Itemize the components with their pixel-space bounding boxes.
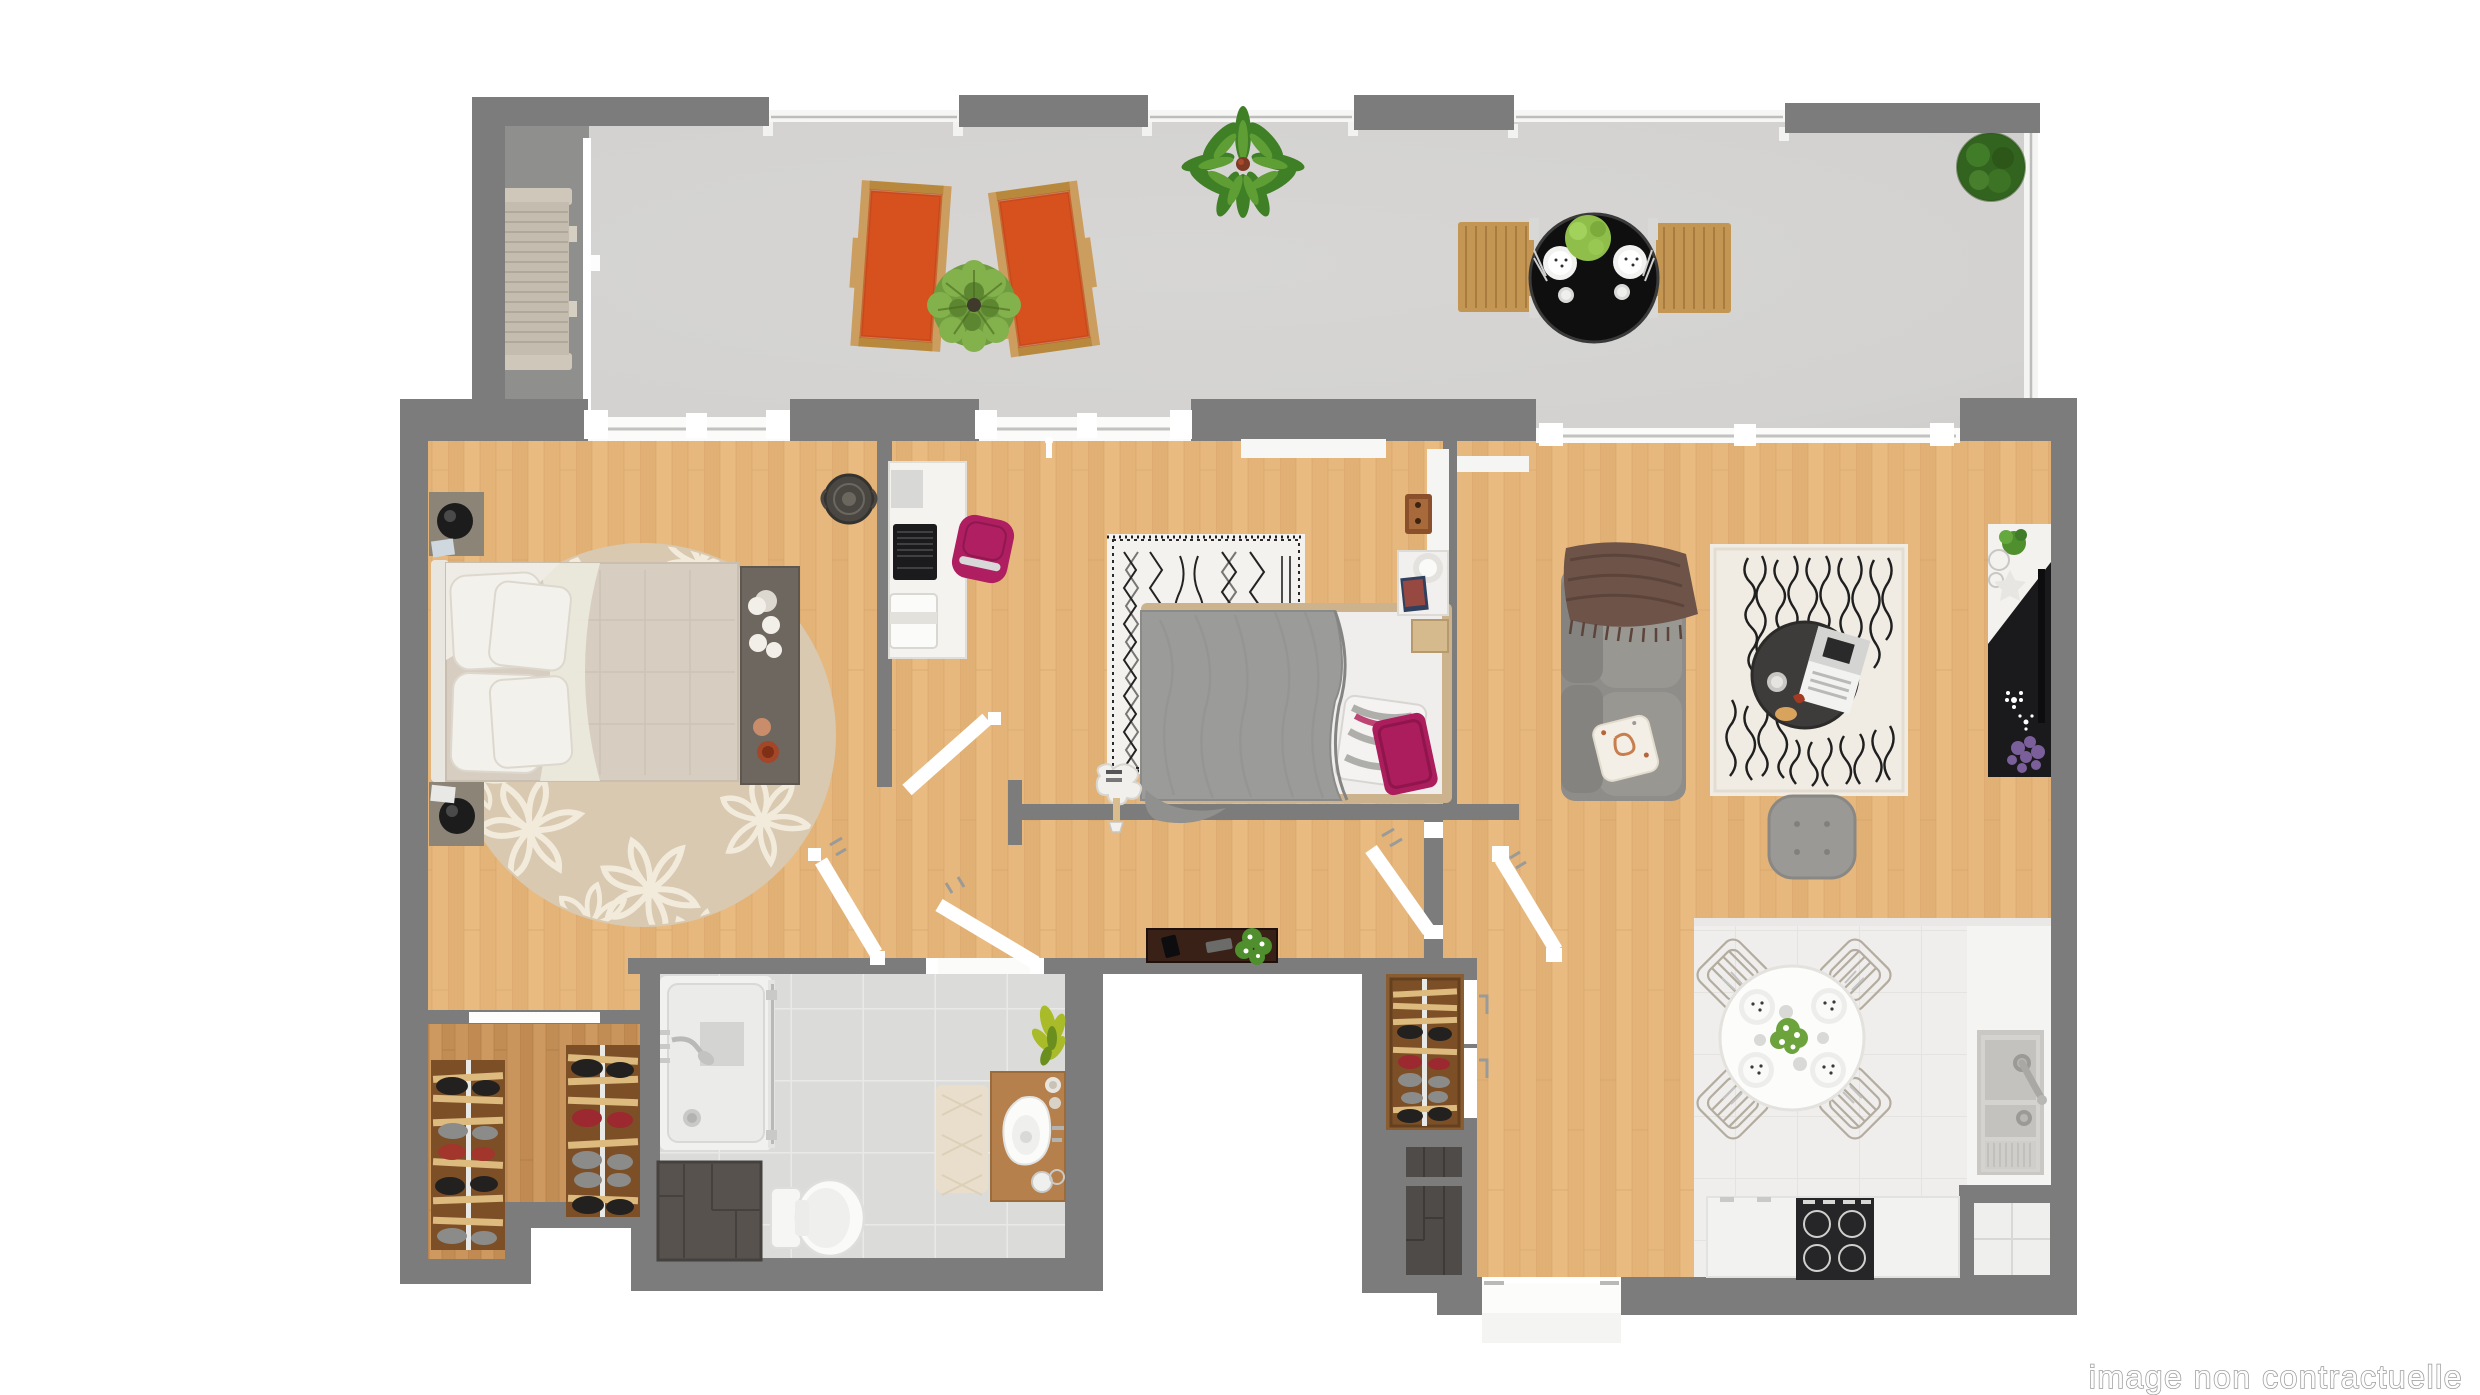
svg-text:image non contractuelle: image non contractuelle [2089,1359,2463,1395]
